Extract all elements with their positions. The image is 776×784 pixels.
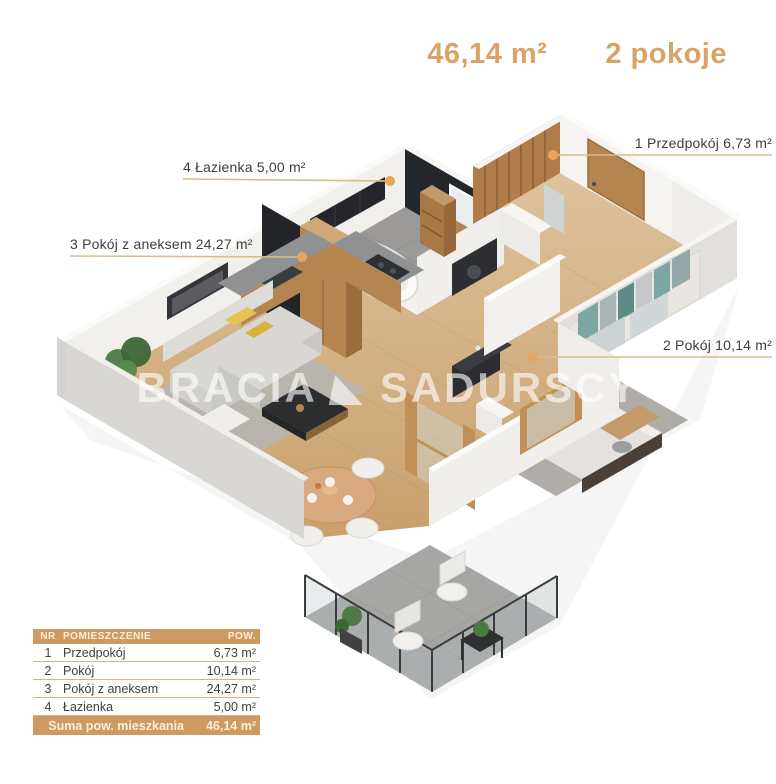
table-row: 2 Pokój 10,14 m² bbox=[33, 662, 260, 680]
room-marker-dot bbox=[548, 150, 558, 160]
footer-label: Suma pow. mieszkania bbox=[33, 719, 194, 733]
table-row: 4 Łazienka 5,00 m² bbox=[33, 698, 260, 716]
label-pokoj: 2 Pokój 10,14 m² bbox=[663, 337, 772, 353]
dining-chair bbox=[346, 518, 378, 538]
room-marker-dot bbox=[527, 352, 537, 362]
dining-chair bbox=[352, 458, 384, 478]
table-row: 3 Pokój z aneksem 24,27 m² bbox=[33, 680, 260, 698]
label-pokoj-z-aneksem: 3 Pokój z aneksem 24,27 m² bbox=[70, 236, 253, 252]
plan-header: 46,14 m² 2 pokoje bbox=[427, 38, 727, 71]
row-area: 10,14 m² bbox=[194, 664, 260, 678]
row-area: 24,27 m² bbox=[194, 682, 260, 696]
row-nr: 1 bbox=[33, 646, 63, 660]
row-nr: 3 bbox=[33, 682, 63, 696]
row-area: 6,73 m² bbox=[194, 646, 260, 660]
row-room: Pokój bbox=[63, 664, 194, 678]
area-table: NR POMIESZCZENIE POW. 1 Przedpokój 6,73 … bbox=[33, 629, 260, 735]
col-room: POMIESZCZENIE bbox=[63, 631, 194, 642]
door-handle bbox=[592, 182, 596, 186]
room-count-text: 2 pokoje bbox=[605, 38, 727, 71]
balcony-plant bbox=[473, 621, 489, 637]
balcony-chair bbox=[437, 583, 467, 601]
col-nr: NR bbox=[33, 631, 63, 642]
row-nr: 4 bbox=[33, 700, 63, 714]
col-area: POW. bbox=[194, 631, 260, 642]
desk-chair bbox=[612, 441, 632, 453]
table-row: 1 Przedpokój 6,73 m² bbox=[33, 644, 260, 662]
room-marker-dot bbox=[297, 252, 307, 262]
row-room: Przedpokój bbox=[63, 646, 194, 660]
label-przedpokoj: 1 Przedpokój 6,73 m² bbox=[635, 135, 772, 151]
floorplan-page: BRACIA SADURSCY 46,14 m² 2 pokoje 1 Prze… bbox=[0, 0, 776, 784]
room-marker-dot bbox=[385, 176, 395, 186]
area-table-footer: Suma pow. mieszkania 46,14 m² bbox=[33, 716, 260, 735]
label-lazienka: 4 Łazienka 5,00 m² bbox=[183, 159, 306, 175]
total-area-text: 46,14 m² bbox=[427, 38, 547, 71]
leader-line-pokoj-z-aneksem bbox=[70, 256, 300, 257]
footer-value: 46,14 m² bbox=[194, 719, 260, 733]
row-room: Pokój z aneksem bbox=[63, 682, 194, 696]
row-area: 5,00 m² bbox=[194, 700, 260, 714]
area-table-header: NR POMIESZCZENIE POW. bbox=[33, 629, 260, 644]
balcony-chair bbox=[393, 632, 423, 650]
row-nr: 2 bbox=[33, 664, 63, 678]
row-room: Łazienka bbox=[63, 700, 194, 714]
